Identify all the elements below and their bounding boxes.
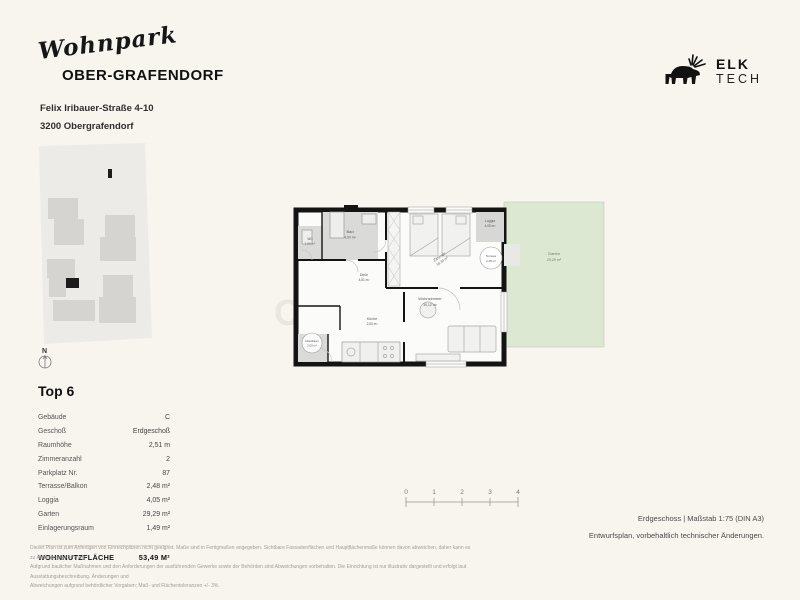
garden-area xyxy=(504,202,604,347)
plan-info: Erdgeschoss | Maßstab 1:75 (DIN A3) xyxy=(638,514,764,523)
label-bad: Bad xyxy=(346,229,353,234)
label-kueche: Küche xyxy=(367,317,377,321)
row-value: 4,05 m² xyxy=(147,497,170,504)
terrace-pad xyxy=(504,244,520,266)
row-label: Gebäude xyxy=(38,414,66,421)
terrasse-label-circle xyxy=(480,247,502,269)
elk-icon xyxy=(665,52,709,90)
disclaimer-line-3: Abweichungen aufgrund behördlicher Vorga… xyxy=(30,582,475,592)
scale-tick-2: 2 xyxy=(460,489,464,496)
table-row: GebäudeC xyxy=(38,411,170,425)
row-value: 87 xyxy=(162,470,170,477)
table-row: Loggia4,05 m² xyxy=(38,494,170,508)
brand-name-top: ELK xyxy=(716,56,762,72)
label-abstellraum: Abstellraum xyxy=(305,339,319,343)
disclaimer-line-1: Dieser Plan ist zum Anfertigen von Einre… xyxy=(30,544,475,563)
table-row: Zimmeranzahl2 xyxy=(38,452,170,466)
project-logo-main: OBER-GRAFENDORF xyxy=(62,67,224,84)
row-value: Erdgeschoß xyxy=(133,428,170,435)
plan-sheet: Wohnpark OBER-GRAFENDORF Felix Iribauer-… xyxy=(0,0,800,600)
label-wohnzimmer: Wohnzimmer xyxy=(418,296,442,301)
compass-needle xyxy=(43,356,47,368)
table-row: Raumhöhe2,51 m xyxy=(38,439,170,453)
plan-note: Entwurfsplan, vorbehaltlich technischer … xyxy=(589,531,764,540)
table-row: Parkplatz Nr.87 xyxy=(38,466,170,480)
unit-details: Top 6 GebäudeC GeschoßErdgeschoß Raumhöh… xyxy=(38,383,170,562)
address-line-1: Felix Iribauer-Straße 4-10 xyxy=(40,100,154,118)
scale-bar-labels: 0 1 2 3 4 xyxy=(404,489,520,496)
project-address: Felix Iribauer-Straße 4-10 3200 Obergraf… xyxy=(40,100,154,135)
label-loggia: Loggia xyxy=(485,219,495,223)
disclaimer: Dieser Plan ist zum Anfertigen von Einre… xyxy=(30,544,475,592)
area-kueche: 2,60 m² xyxy=(367,322,378,326)
label-garten: Garten xyxy=(548,251,560,256)
disclaimer-line-2: Aufgrund baulicher Maßnahmen und den Anf… xyxy=(30,563,475,582)
row-label: Raumhöhe xyxy=(38,442,72,449)
table-row: Garten29,29 m² xyxy=(38,507,170,521)
scale-tick-4: 4 xyxy=(516,489,520,496)
brand-name-bottom: TECH xyxy=(716,72,762,86)
brand-text: ELK TECH xyxy=(716,56,762,86)
row-label: Terrasse/Balkon xyxy=(38,483,87,490)
area-terrasse: 2,48 m² xyxy=(486,259,496,263)
label-terrasse: Terrasse xyxy=(486,254,497,258)
area-loggia: 4,05 m² xyxy=(485,224,496,228)
area-diele: 4,81 m² xyxy=(359,278,370,282)
table-row: Terrasse/Balkon2,48 m² xyxy=(38,480,170,494)
area-bad: 4,00 m² xyxy=(344,236,356,240)
label-diele: Diele xyxy=(360,273,368,277)
table-row: Einlagerungsraum1,49 m² xyxy=(38,521,170,535)
scale-bar: 0 1 2 3 4 xyxy=(402,486,522,510)
row-label: Loggia xyxy=(38,497,59,504)
row-label: Parkplatz Nr. xyxy=(38,470,77,477)
unit-title: Top 6 xyxy=(38,383,170,399)
area-wohnzimmer: 30,12 m² xyxy=(423,303,437,307)
row-label: Geschoß xyxy=(38,428,66,435)
floor-plan: Bad 4,00 m² WC 1,66 m² Zimmer 10,30 m² D… xyxy=(288,196,610,372)
row-value: 1,49 m² xyxy=(147,525,170,532)
project-logo: Wohnpark OBER-GRAFENDORF xyxy=(40,38,224,84)
shaft xyxy=(344,205,358,212)
table-row: GeschoßErdgeschoß xyxy=(38,425,170,439)
area-abstellraum: 2,00 m² xyxy=(307,344,317,348)
compass: N xyxy=(39,348,51,368)
row-label: Zimmeranzahl xyxy=(38,456,82,463)
highlighted-unit xyxy=(66,278,79,288)
row-value: 2 xyxy=(166,456,170,463)
area-wc: 1,66 m² xyxy=(305,242,315,246)
row-value: C xyxy=(165,414,170,421)
scale-tick-1: 1 xyxy=(432,489,436,496)
elk-body xyxy=(665,66,700,84)
project-logo-script: Wohnpark xyxy=(37,16,223,65)
area-garten: 29,29 m² xyxy=(547,258,562,262)
row-value: 29,29 m² xyxy=(143,511,170,518)
site-plan: N xyxy=(33,140,183,370)
row-label: Garten xyxy=(38,511,59,518)
brand-logo: ELK TECH xyxy=(665,52,762,90)
scale-tick-0: 0 xyxy=(404,489,408,496)
row-label: Einlagerungsraum xyxy=(38,525,94,532)
row-value: 2,48 m² xyxy=(147,483,170,490)
scale-tick-3: 3 xyxy=(488,489,492,496)
label-wc: WC xyxy=(307,237,313,241)
row-value: 2,51 m xyxy=(149,442,170,449)
address-line-2: 3200 Obergrafendorf xyxy=(40,118,154,136)
compass-label: N xyxy=(42,348,47,355)
